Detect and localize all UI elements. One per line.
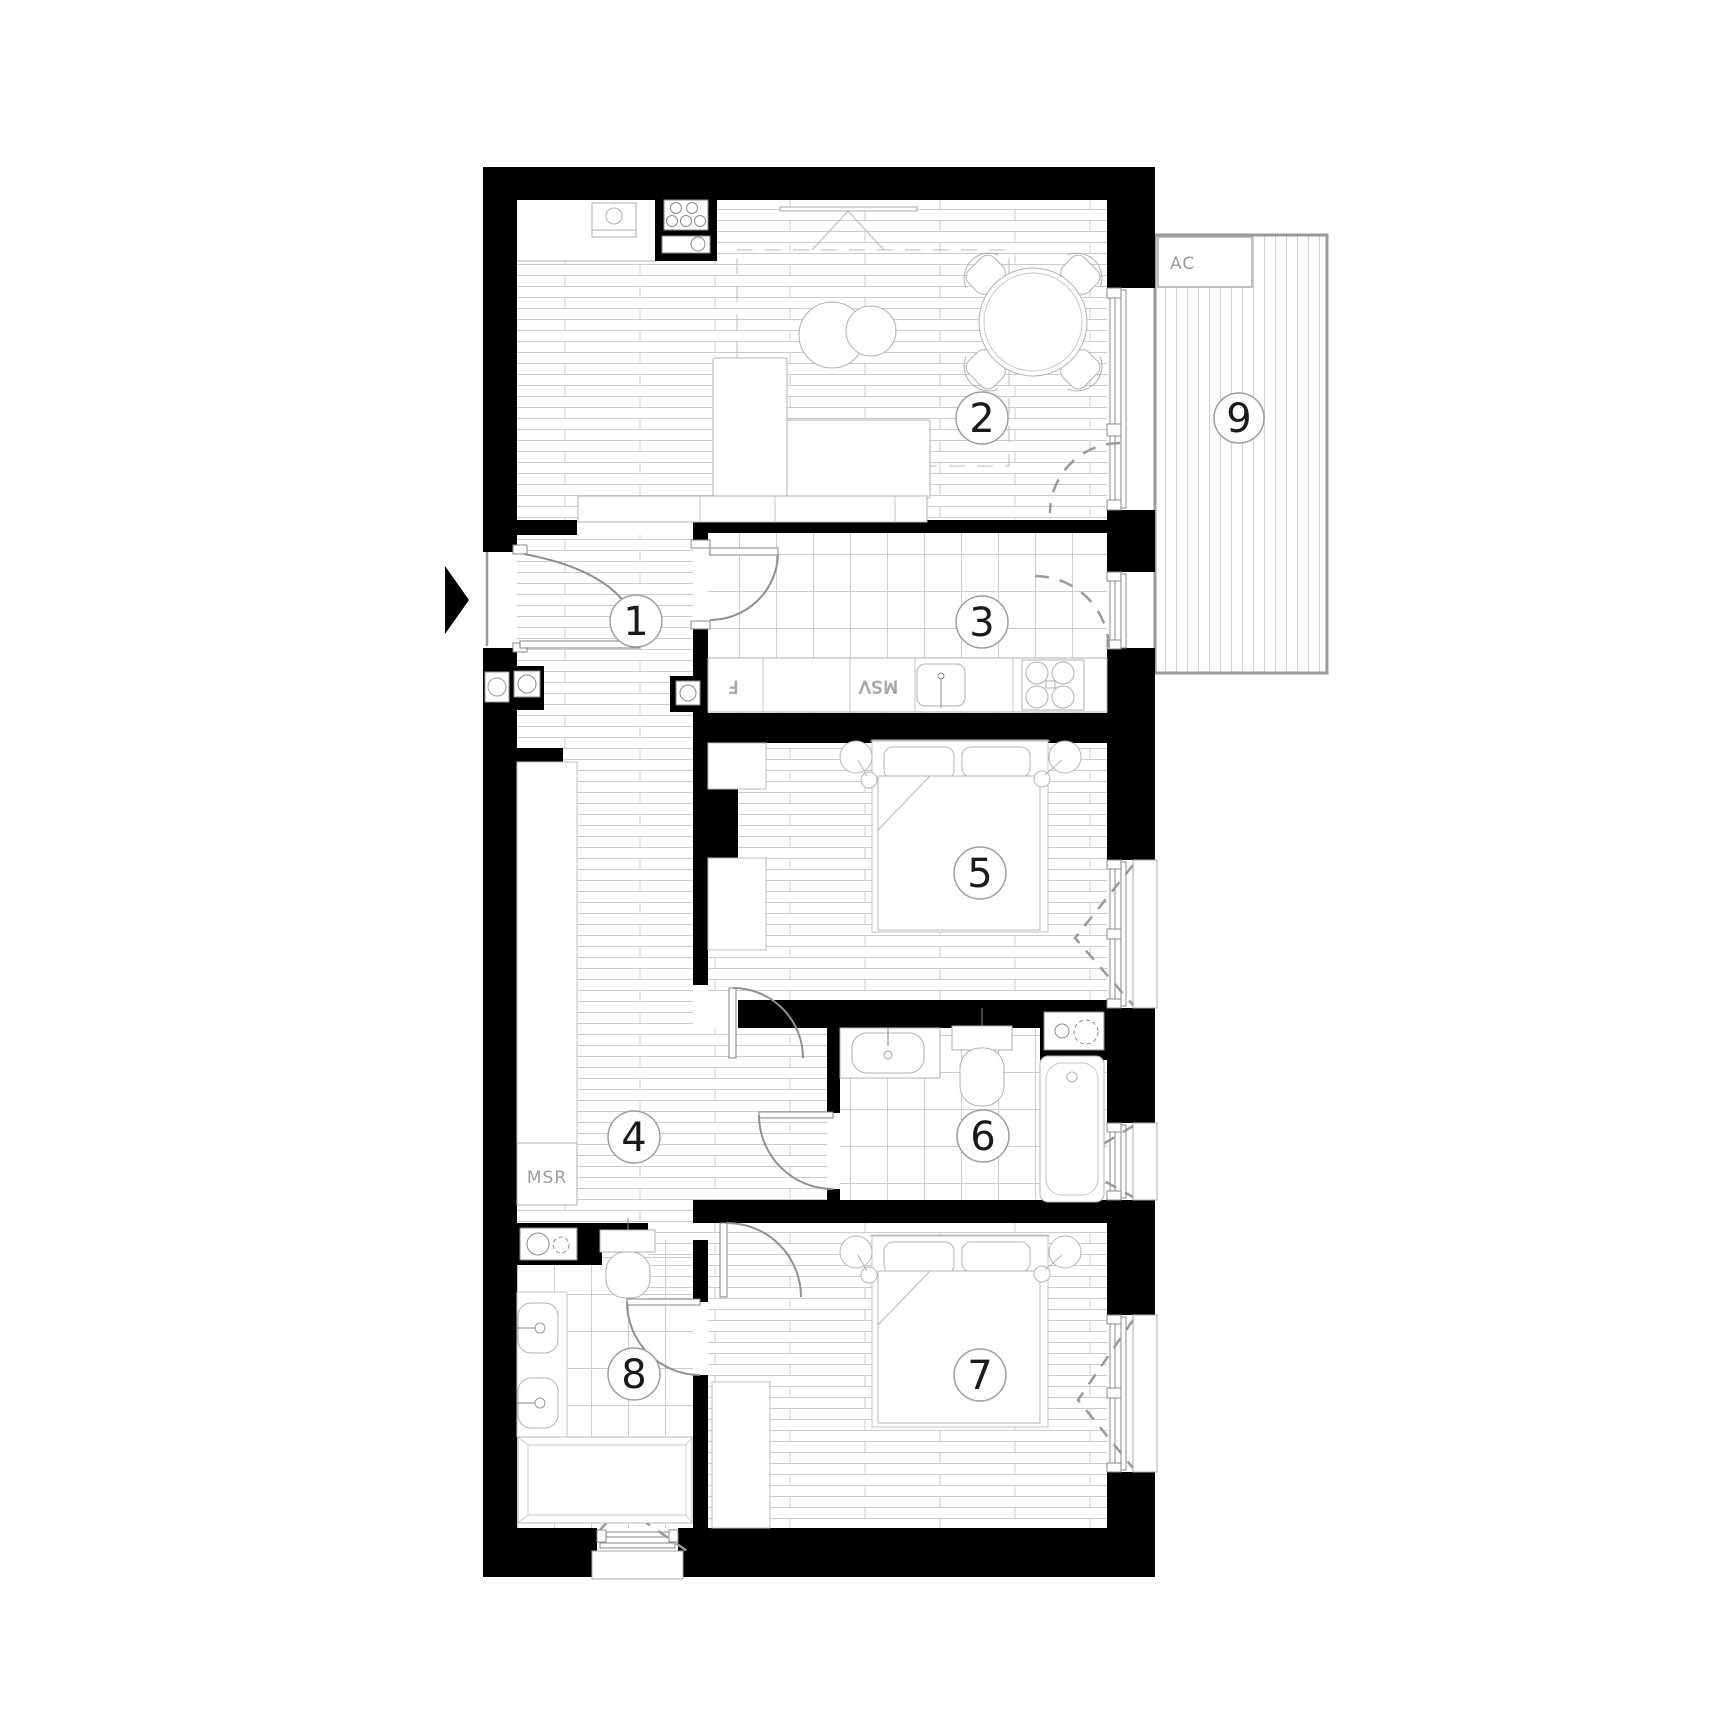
shower xyxy=(518,1437,692,1523)
wall-right-b xyxy=(1107,510,1155,572)
washer-6 xyxy=(1044,1012,1104,1050)
bathtub xyxy=(1040,1056,1104,1202)
svg-text:2: 2 xyxy=(969,396,994,442)
svg-text:4: 4 xyxy=(621,1115,646,1161)
ac-label: AC xyxy=(1170,254,1195,274)
svg-text:9: 9 xyxy=(1226,396,1251,442)
balcony: AC xyxy=(1155,235,1327,673)
msv-label: MSV xyxy=(858,676,898,696)
wall-left-upper xyxy=(483,167,517,552)
wall-bottom-right xyxy=(678,1528,1155,1577)
wall-stub-living xyxy=(517,520,577,535)
room-label-9: 9 xyxy=(1214,393,1264,443)
entrance-arrow-icon xyxy=(445,566,469,634)
room-label-5: 5 xyxy=(954,847,1006,899)
svg-text:5: 5 xyxy=(967,851,992,897)
svg-text:6: 6 xyxy=(970,1114,995,1160)
room-label-2: 2 xyxy=(956,392,1008,444)
balcony-deck xyxy=(1155,235,1327,673)
svg-text:1: 1 xyxy=(623,599,648,645)
room-label-3: 3 xyxy=(956,596,1008,648)
wardrobe-5a xyxy=(708,743,766,789)
wall-kitchen-bedroom5 xyxy=(708,713,1107,743)
sink-8a xyxy=(517,1303,558,1353)
kitchen-sink xyxy=(917,664,965,708)
sideboard xyxy=(578,496,927,522)
kitchen-hob xyxy=(1022,660,1084,710)
wall-bath8-right-a xyxy=(693,1240,708,1302)
wall-top xyxy=(483,167,1155,200)
wall-bath6-left-b xyxy=(827,1189,840,1200)
wall-bath8-right-b xyxy=(693,1375,708,1528)
floor-plan-page: AC xyxy=(0,0,1718,1718)
sink-8b xyxy=(517,1378,558,1428)
dining-table xyxy=(979,268,1087,376)
wall-right-f xyxy=(1107,1472,1155,1577)
wall-bath6-bedroom7 xyxy=(693,1200,1107,1223)
svg-text:3: 3 xyxy=(969,600,994,646)
wall-bottom-left xyxy=(483,1528,597,1577)
wardrobe-5b xyxy=(708,858,766,950)
room-label-6: 6 xyxy=(957,1110,1009,1162)
room-label-8: 8 xyxy=(608,1348,660,1400)
wall-left-lower xyxy=(483,648,517,1577)
room-label-7: 7 xyxy=(954,1349,1006,1401)
bed-7 xyxy=(870,1235,1050,1427)
wall-right-e xyxy=(1107,1200,1155,1315)
hall-wardrobe xyxy=(517,762,577,1143)
bed-5 xyxy=(870,740,1050,932)
wall-right-c xyxy=(1107,648,1155,860)
washer-8 xyxy=(520,1228,577,1260)
kitchen-room: F MSV xyxy=(708,658,1107,712)
wall-right-d xyxy=(1107,1008,1155,1123)
dining-set xyxy=(955,244,1111,400)
msr-label: MSR xyxy=(527,1168,567,1188)
floor-plan-drawing: AC xyxy=(0,0,1718,1718)
fridge-label: F xyxy=(728,676,739,696)
wall-corridor-bedroom5 xyxy=(693,788,708,985)
wardrobe-7 xyxy=(712,1382,770,1528)
svg-text:7: 7 xyxy=(967,1353,992,1399)
wall-right-a xyxy=(1107,167,1155,288)
room-label-4: 4 xyxy=(608,1111,660,1163)
svg-text:8: 8 xyxy=(621,1352,646,1398)
wall-bath6-left-a xyxy=(827,1028,840,1113)
room-label-1: 1 xyxy=(610,595,662,647)
wall-pier-bedroom5 xyxy=(708,788,738,858)
shaft-box-b xyxy=(485,672,509,702)
